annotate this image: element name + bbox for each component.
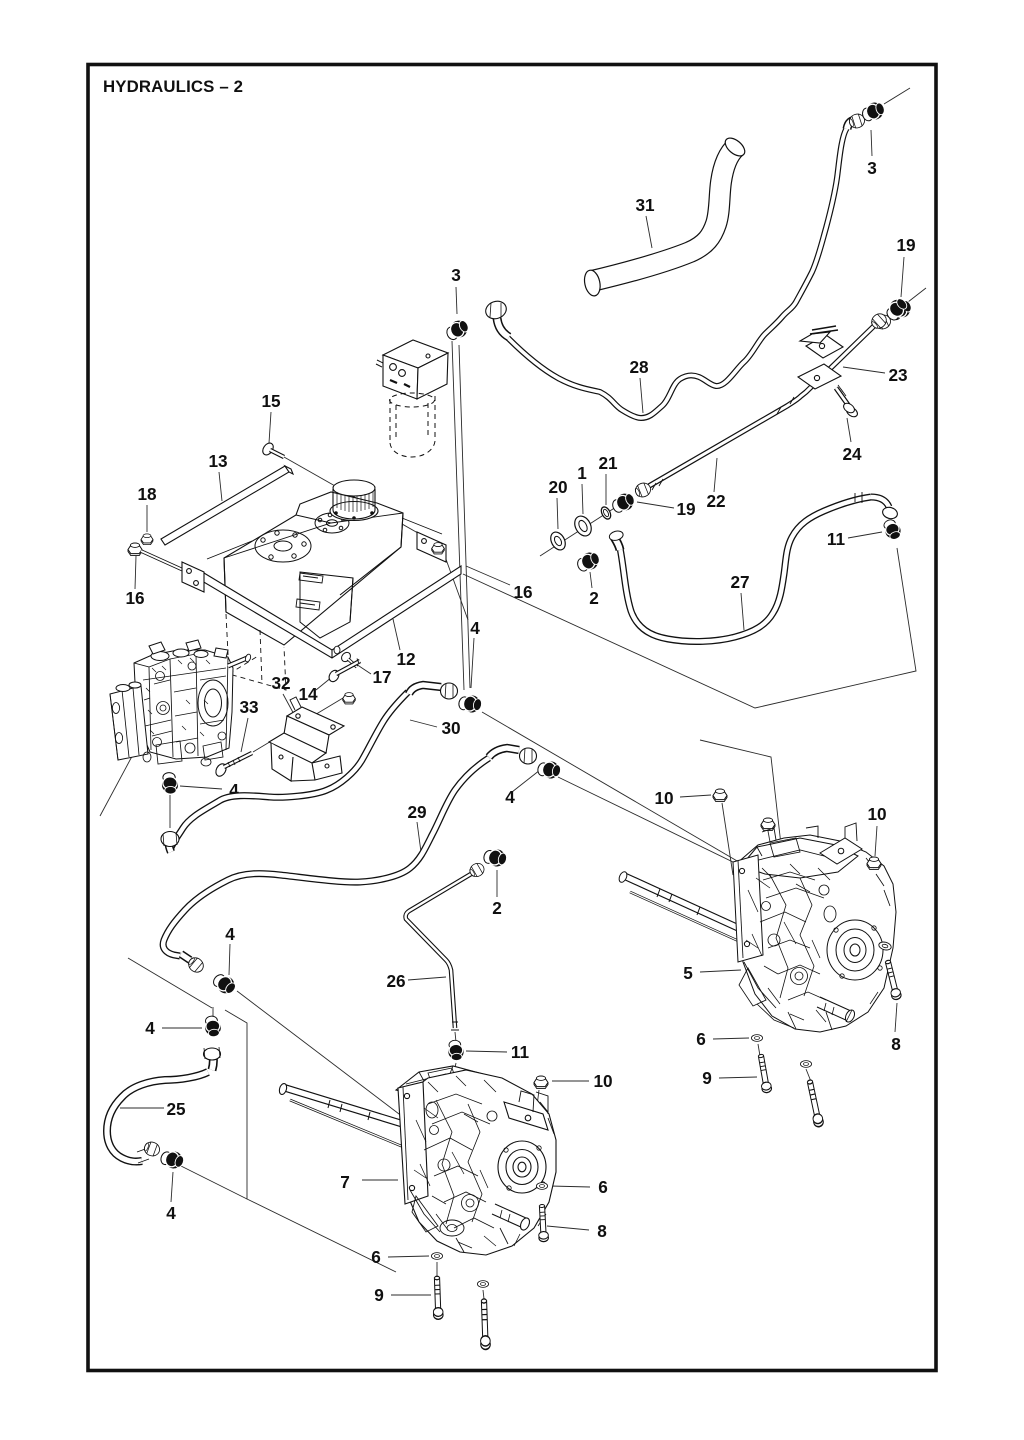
svg-text:6: 6: [598, 1177, 608, 1197]
svg-text:4: 4: [225, 924, 235, 944]
svg-text:8: 8: [597, 1221, 607, 1241]
svg-text:4: 4: [145, 1018, 155, 1038]
svg-text:26: 26: [386, 971, 405, 991]
svg-text:11: 11: [511, 1042, 530, 1062]
svg-text:15: 15: [261, 391, 281, 411]
svg-text:HYDRAULICS – 2: HYDRAULICS – 2: [103, 77, 243, 96]
svg-text:16: 16: [125, 588, 144, 608]
svg-text:12: 12: [396, 649, 415, 669]
svg-text:3: 3: [451, 265, 461, 285]
svg-text:23: 23: [888, 365, 907, 385]
svg-text:9: 9: [702, 1068, 712, 1088]
svg-text:4: 4: [470, 618, 480, 638]
svg-text:8: 8: [891, 1034, 901, 1054]
svg-text:13: 13: [208, 451, 227, 471]
svg-text:33: 33: [239, 697, 258, 717]
svg-text:18: 18: [137, 484, 157, 504]
svg-text:6: 6: [696, 1029, 706, 1049]
svg-text:5: 5: [683, 963, 693, 983]
svg-text:19: 19: [896, 235, 915, 255]
svg-text:27: 27: [730, 572, 749, 592]
svg-text:11: 11: [827, 529, 846, 549]
svg-text:16: 16: [513, 582, 532, 602]
svg-text:14: 14: [298, 684, 318, 704]
svg-text:25: 25: [166, 1099, 186, 1119]
svg-text:21: 21: [598, 453, 618, 473]
svg-text:3: 3: [867, 158, 877, 178]
svg-text:20: 20: [548, 477, 567, 497]
svg-text:1: 1: [577, 463, 587, 483]
svg-text:28: 28: [629, 357, 649, 377]
svg-text:2: 2: [589, 588, 599, 608]
svg-text:32: 32: [271, 673, 290, 693]
svg-text:17: 17: [372, 667, 391, 687]
svg-text:7: 7: [340, 1172, 350, 1192]
svg-text:9: 9: [374, 1285, 384, 1305]
svg-text:10: 10: [593, 1071, 612, 1091]
svg-text:4: 4: [505, 787, 515, 807]
svg-text:6: 6: [371, 1247, 381, 1267]
svg-text:31: 31: [635, 195, 655, 215]
svg-text:10: 10: [867, 804, 886, 824]
svg-text:22: 22: [706, 491, 725, 511]
svg-text:30: 30: [441, 718, 460, 738]
svg-text:19: 19: [676, 499, 695, 519]
svg-text:2: 2: [492, 898, 502, 918]
svg-text:29: 29: [407, 802, 426, 822]
svg-text:24: 24: [842, 444, 862, 464]
svg-text:4: 4: [166, 1203, 176, 1223]
svg-text:10: 10: [654, 788, 673, 808]
